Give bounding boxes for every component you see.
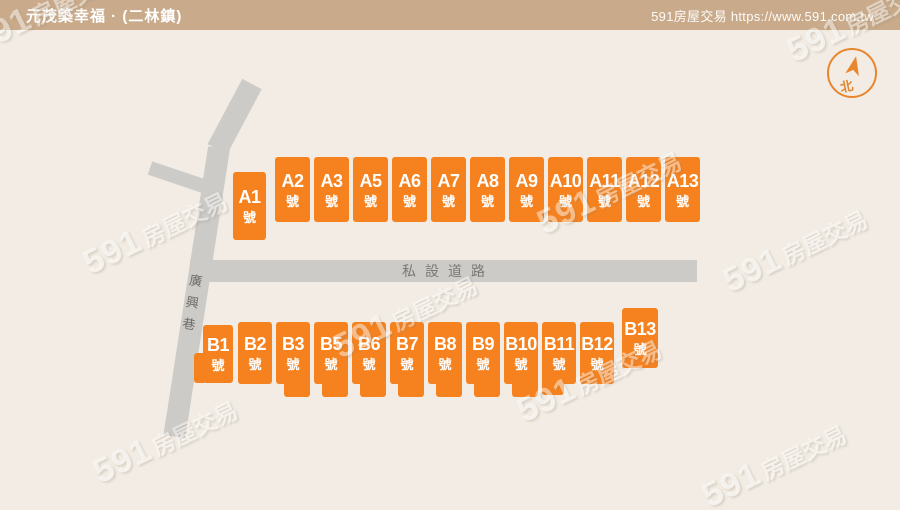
road-top-segment <box>208 79 262 155</box>
block-a12[interactable]: A12號 <box>626 157 661 222</box>
site-url[interactable]: 591房屋交易 https://www.591.com.tw <box>651 6 874 25</box>
block-b8[interactable]: B8號 <box>428 322 462 384</box>
watermark: 591房屋交易 <box>696 413 852 510</box>
watermark: 591房屋交易 <box>717 198 873 301</box>
block-a13[interactable]: A13號 <box>665 157 700 222</box>
compass: 北 <box>827 48 877 98</box>
block-b13[interactable]: B13 號 <box>622 308 658 368</box>
b-row: B2號 B3號 B5號 B6號 B7號 B8號 B9號 B10號 B11號 B1… <box>238 322 614 384</box>
page-title: 元茂築幸福 · (二林鎮) <box>26 5 182 26</box>
block-a9[interactable]: A9號 <box>509 157 544 222</box>
block-a10[interactable]: A10號 <box>548 157 583 222</box>
block-a11[interactable]: A11號 <box>587 157 622 222</box>
block-b11[interactable]: B11號 <box>542 322 576 384</box>
block-b10[interactable]: B10號 <box>504 322 538 384</box>
block-b6[interactable]: B6號 <box>352 322 386 384</box>
block-b2[interactable]: B2號 <box>238 322 272 384</box>
block-b1[interactable]: B1 號 <box>203 325 233 383</box>
block-a1[interactable]: A1 號 <box>233 172 266 240</box>
private-road-label: 私設道路 <box>393 261 494 281</box>
block-a6[interactable]: A6號 <box>392 157 427 222</box>
block-b3[interactable]: B3號 <box>276 322 310 384</box>
watermark: 591房屋交易 <box>87 389 243 492</box>
block-a5[interactable]: A5號 <box>353 157 388 222</box>
block-b7[interactable]: B7號 <box>390 322 424 384</box>
a-row: A2號 A3號 A5號 A6號 A7號 A8號 A9號 A10號 A11號 A1… <box>275 157 700 222</box>
site-plan-page: 元茂築幸福 · (二林鎮) 591房屋交易 https://www.591.co… <box>0 0 900 510</box>
block-a3[interactable]: A3號 <box>314 157 349 222</box>
compass-north-label: 北 <box>838 75 855 96</box>
block-b9[interactable]: B9號 <box>466 322 500 384</box>
block-a2[interactable]: A2號 <box>275 157 310 222</box>
block-a8[interactable]: A8號 <box>470 157 505 222</box>
road-private: 私設道路 <box>190 260 697 282</box>
block-b5[interactable]: B5號 <box>314 322 348 384</box>
header-bar: 元茂築幸福 · (二林鎮) 591房屋交易 https://www.591.co… <box>0 0 900 30</box>
block-b12[interactable]: B12號 <box>580 322 614 384</box>
block-a7[interactable]: A7號 <box>431 157 466 222</box>
